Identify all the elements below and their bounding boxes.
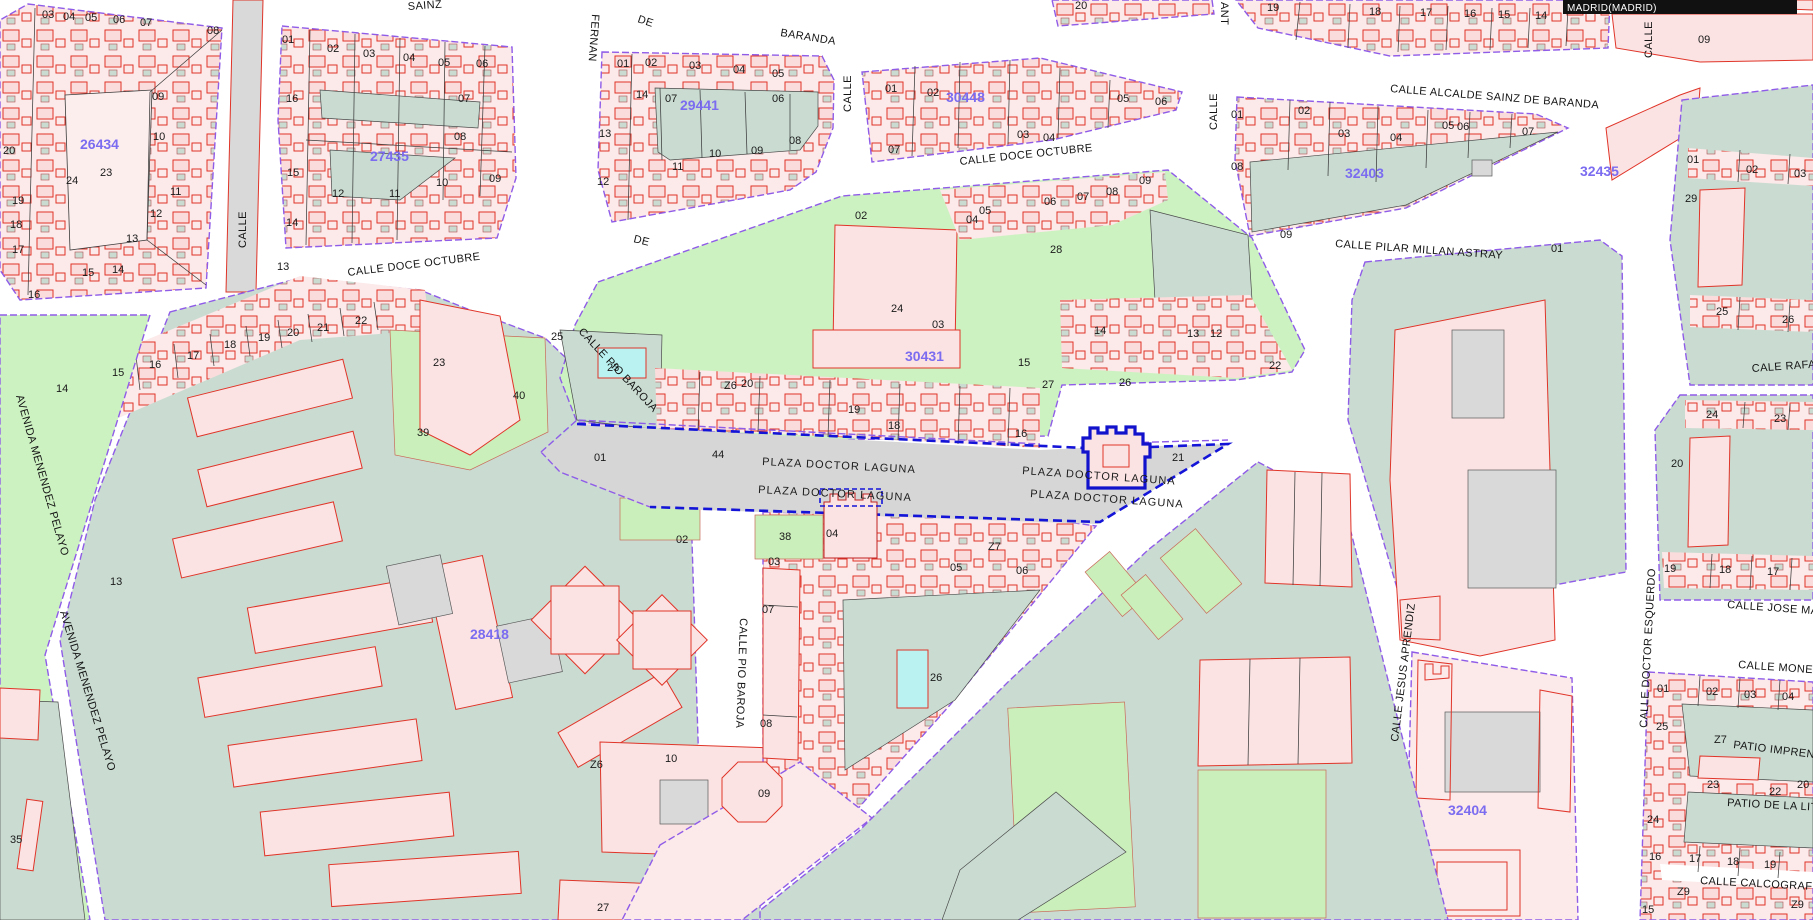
parcel-number-label: 12 — [597, 176, 609, 188]
parcel-number-label: 14 — [56, 383, 68, 395]
street-name-label: CALLE — [842, 75, 854, 112]
region-badge: MADRID(MADRID) — [1563, 0, 1797, 14]
parcel-number-label: 03 — [1794, 168, 1806, 180]
courtyard-gray — [1445, 712, 1540, 792]
parcel-number-label: 09 — [489, 173, 501, 185]
block-number-label: 30448 — [946, 89, 985, 105]
parcel-number-label: 02 — [645, 57, 657, 69]
parcel-number-label: 12 — [150, 208, 162, 220]
parcel-number-label: 05 — [950, 562, 962, 574]
parcel-number-label: 27 — [1042, 379, 1054, 391]
map-canvas[interactable]: SAINZDEBARANDAFERNANCALLECALLECALLEANTCA… — [0, 0, 1813, 920]
parcel-number-label: 09 — [1698, 34, 1710, 46]
parcel-number-label: 38 — [779, 531, 791, 543]
parcel-number-label: 09 — [1139, 175, 1151, 187]
parcel-number-label: 19 — [1664, 563, 1676, 575]
parcel-number-label: 03 — [1744, 689, 1756, 701]
parcel-number-label: 07 — [888, 144, 900, 156]
parcel-number-label: 14 — [1535, 10, 1547, 22]
parcel-number-label: 04 — [63, 11, 75, 23]
parcel-number-label: 20 — [1671, 458, 1683, 470]
parcel-number-label: 06 — [1457, 121, 1469, 133]
parcel-number-label: 35 — [10, 834, 22, 846]
block-number-label: 28418 — [470, 626, 509, 642]
parcel-number-label: 18 — [888, 420, 900, 432]
parcel-number-label: 12 — [332, 188, 344, 200]
block-number-label: 32404 — [1448, 802, 1487, 818]
parcel-number-label: 15 — [112, 367, 124, 379]
parcel-number-label: 15 — [287, 167, 299, 179]
parcel-number-label: 03 — [689, 60, 701, 72]
sports-field — [1198, 770, 1326, 918]
parcel-number-label: 24 — [1647, 814, 1659, 826]
courtyard-gray — [660, 780, 708, 824]
parcel-number-label: 16 — [28, 289, 40, 301]
parcel-number-label: 05 — [979, 205, 991, 217]
parcel-number-label: 29 — [1685, 193, 1697, 205]
parcel-number-label: 18 — [10, 219, 22, 231]
parcel-number-label: 02 — [1746, 164, 1758, 176]
parcel-number-label: 18 — [1369, 6, 1381, 18]
courtyard-gray — [1468, 470, 1556, 588]
parcel-number-label: 10 — [709, 148, 721, 160]
parcel-number-label: 04 — [733, 64, 745, 76]
parcel-number-label: 19 — [1267, 2, 1279, 14]
parcel-number-label: 14 — [286, 217, 298, 229]
parcel-number-label: 02 — [1298, 105, 1310, 117]
parcel-number-label: 16 — [1649, 851, 1661, 863]
parcel-number-label: 01 — [617, 58, 629, 70]
parcel-number-label: 01 — [594, 452, 606, 464]
parcel-number-label: 08 — [454, 131, 466, 143]
parcel-number-label: 16 — [286, 93, 298, 105]
parcel-number-label: 14 — [1094, 325, 1106, 337]
parcel-number-label: 09 — [1280, 229, 1292, 241]
parcel-number-label: 19 — [848, 404, 860, 416]
parcel-number-label: 17 — [1767, 566, 1779, 578]
parcel-number-label: 11 — [389, 188, 400, 200]
tower-building-04 — [824, 493, 877, 558]
parcel-number-label: 06 — [476, 58, 488, 70]
parcel-number-label: 03 — [768, 556, 780, 568]
parcel-number-label: 03 — [1017, 129, 1029, 141]
parcel-number-label: 19 — [258, 332, 270, 344]
parcel-number-label: 23 — [1774, 413, 1786, 425]
parcel-number-label: 17 — [1420, 7, 1432, 19]
parcel-number-label: 23 — [1707, 779, 1719, 791]
parcel-number-label: 02 — [676, 534, 688, 546]
parcel-number-label: 11 — [672, 161, 683, 173]
parcel-number-label: 18 — [224, 339, 236, 351]
parcel-number-label: 25 — [1716, 306, 1728, 318]
parcel-number-label: 09 — [152, 91, 164, 103]
parcel-number-label: 17 — [187, 350, 199, 362]
parcel-number-label: 05 — [85, 12, 97, 24]
parcel-number-label: 13 — [1187, 328, 1199, 340]
parcel-number-label: 23 — [100, 167, 112, 179]
parcel-number-label: 01 — [282, 34, 294, 46]
parcel-number-label: 23 — [607, 362, 619, 374]
badge-label: MADRID(MADRID) — [1567, 3, 1657, 14]
parcel-number-label: 02 — [1706, 686, 1718, 698]
parcel-number-label: 24 — [1706, 409, 1718, 421]
parcel-number-label: 03 — [363, 48, 375, 60]
parcel-number-label: 04 — [826, 528, 838, 540]
parcel-number-label: Z6 — [724, 380, 737, 392]
parcel-number-label: 04 — [403, 52, 415, 64]
parcel-number-label: 28 — [1050, 244, 1062, 256]
parcel-number-label: 03 — [1338, 128, 1350, 140]
parcel-strip[interactable] — [1685, 400, 1813, 430]
parcel-number-label: 17 — [1689, 853, 1701, 865]
parcel-number-label: 19 — [12, 195, 24, 207]
parcel-number-label: 05 — [1442, 120, 1454, 132]
building — [0, 688, 40, 740]
courtyard-gray — [1452, 330, 1504, 418]
parcel-number-label: 13 — [110, 576, 122, 588]
parcel-number-label: 07 — [1077, 191, 1089, 203]
parcel-number-label: 14 — [112, 264, 124, 276]
parcel-number-label: 15 — [82, 267, 94, 279]
parcel-number-label: 08 — [760, 718, 772, 730]
building-cluster — [1265, 470, 1352, 587]
parcel-number-label: 40 — [513, 390, 525, 402]
parcel-number-label: 44 — [712, 449, 724, 461]
parcel-number-label: 26 — [1119, 377, 1131, 389]
parcel-number-label: 17 — [12, 244, 24, 256]
parcel-number-label: 07 — [762, 604, 774, 616]
parcel-number-label: 15 — [1642, 904, 1654, 916]
parcel-number-label: 05 — [1117, 93, 1129, 105]
parcel-number-label: 05 — [772, 68, 784, 80]
parcel-number-label: 01 — [1231, 109, 1243, 121]
parcel-number-label: 21 — [317, 322, 329, 334]
parcel-number-label: Z9 — [1677, 886, 1690, 898]
parcel-number-label: 01 — [1657, 683, 1669, 695]
block-number-label: 26434 — [80, 136, 119, 152]
parcel-number-label: 05 — [438, 57, 450, 69]
block-number-label: 27435 — [370, 148, 409, 164]
parcel-number-label: 25 — [551, 331, 563, 343]
parcel-number-label: 03 — [42, 9, 54, 21]
parcel-number-label: 20 — [287, 327, 299, 339]
street-name-label: CALLE — [237, 211, 249, 248]
parcel-number-label: 22 — [1769, 786, 1781, 798]
street-name-label: ANT — [1218, 2, 1230, 25]
parcel-number-label: 08 — [1231, 161, 1243, 173]
parcel-number-label: 10 — [665, 753, 677, 765]
block-number-label: 29441 — [680, 97, 719, 113]
parcel-number-label: 09 — [758, 788, 770, 800]
parcel-number-label: 18 — [1727, 856, 1739, 868]
parcel-number-label: 07 — [140, 17, 152, 29]
building — [1698, 188, 1745, 287]
parcel-number-label: 16 — [149, 359, 161, 371]
octagon-building — [722, 762, 782, 822]
parcel-number-label: 23 — [433, 357, 445, 369]
building-cluster — [1198, 657, 1352, 766]
parcel-number-label: 16 — [1464, 8, 1476, 20]
parcel-number-label: 08 — [207, 25, 219, 37]
parcel-number-label: 25 — [1656, 721, 1668, 733]
parcel-number-label: 15 — [1498, 9, 1510, 21]
parcel-number-label: Z7 — [1714, 734, 1727, 746]
parcel-number-label: 02 — [927, 87, 939, 99]
parcel-number-label: 10 — [153, 131, 165, 143]
parcel-number-label: 26 — [930, 672, 942, 684]
parcel-number-label: 15 — [1018, 357, 1030, 369]
parcel-number-label: 19 — [1764, 859, 1776, 871]
parcel-number-label: 27 — [597, 902, 609, 914]
parcel-number-label: 03 — [932, 319, 944, 331]
parcel-number-label: 01 — [1551, 243, 1563, 255]
parcel-number-label: 04 — [966, 214, 978, 226]
parcel-number-label: 24 — [891, 303, 903, 315]
parcel-number-label: 13 — [599, 128, 611, 140]
parcel-number-label: 04 — [1782, 691, 1794, 703]
parcel-number-label: 06 — [1155, 96, 1167, 108]
parcel-number-label: Z6 — [590, 759, 603, 771]
parcel-number-label: 08 — [789, 135, 801, 147]
parcel-number-label: 06 — [113, 14, 125, 26]
parcel-number-label: 14 — [636, 89, 648, 101]
parcel-number-label: 07 — [458, 93, 470, 105]
block-number-label: 30431 — [905, 348, 944, 364]
parcel-number-label: 13 — [126, 233, 138, 245]
parcel-number-label: 18 — [1719, 564, 1731, 576]
parcel-number-label: 16 — [1015, 428, 1027, 440]
parcel-number-label: 04 — [1390, 132, 1402, 144]
parcel-number-label: 22 — [1269, 360, 1281, 372]
parcel-number-label: 02 — [855, 210, 867, 222]
gray-patch — [1472, 160, 1492, 176]
parcel-number-label: 22 — [355, 315, 367, 327]
parcel-number-label: 06 — [1016, 565, 1028, 577]
parcel-number-label: 20 — [1797, 779, 1809, 791]
parcel-number-label: 09 — [751, 145, 763, 157]
parcel-number-label: 20 — [741, 378, 753, 390]
parcel-number-label: 10 — [436, 177, 448, 189]
building-07-08 — [763, 568, 800, 760]
parcel-number-label: 02 — [327, 43, 339, 55]
parcel-number-label: 01 — [885, 83, 897, 95]
parcel-number-label: Z7 — [988, 541, 1001, 553]
parcel-number-label: 39 — [417, 427, 429, 439]
parcel-number-label: 08 — [1106, 186, 1118, 198]
parcel-number-label: 26 — [1782, 314, 1794, 326]
pool-26 — [897, 650, 928, 708]
parcel-number-label: 06 — [772, 93, 784, 105]
parcel-number-label: 13 — [277, 261, 289, 273]
block-number-label: 32435 — [1580, 163, 1619, 179]
parcel-number-label: 21 — [1172, 452, 1184, 464]
parcel-number-label: 20 — [1075, 0, 1087, 12]
parcel-number-label: 06 — [1044, 196, 1056, 208]
parcel-number-label: 20 — [3, 145, 15, 157]
parcel-strip[interactable] — [1690, 295, 1813, 332]
parcel-number-label: 07 — [665, 93, 677, 105]
parcel-number-label: 04 — [1043, 132, 1055, 144]
street-name-label: CALLE — [1208, 93, 1220, 130]
parcel-number-label: 01 — [1687, 154, 1699, 166]
parcel-number-label: 07 — [1522, 126, 1534, 138]
parcel-number-label: Z9 — [1791, 899, 1804, 911]
parcel-number-label: 11 — [170, 186, 181, 198]
parcel-number-label: 12 — [1210, 328, 1222, 340]
block-number-label: 32403 — [1345, 165, 1384, 181]
building — [1688, 436, 1730, 547]
street-name-label: CALLE — [1643, 21, 1655, 58]
building — [1698, 756, 1760, 780]
parcel-number-label: 24 — [66, 175, 78, 187]
